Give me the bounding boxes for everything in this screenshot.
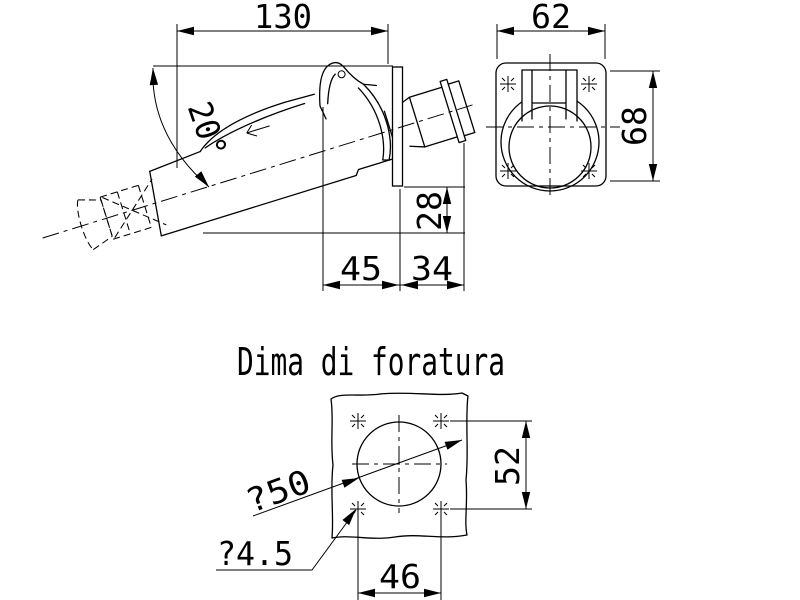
front-view: 62 68 [486,0,660,197]
dim-angle-label: 20° [180,97,235,163]
side-view: 130 20° 28 [43,0,477,291]
dim-4-5-label: ?4.5 [217,534,293,573]
dim-hole-4-5: ?4.5 [216,506,359,573]
drill-template: Dima di foratura ?50 ?4.5 [216,340,532,600]
dim-diameter-50: ?50 [240,436,463,521]
dim-52: 52 [450,421,532,509]
dim-62-label: 62 [531,0,571,36]
dim-28-label: 28 [410,191,449,231]
template-title: Dima di foratura [237,340,505,384]
dim-50-label: ?50 [240,462,315,521]
dim-62: 62 [497,0,605,59]
drawing-canvas: 130 20° 28 [0,0,800,600]
dim-46-label: 46 [379,557,421,596]
dim-130-label: 130 [254,0,312,36]
template-centerlines [352,415,447,513]
dim-52-label: 52 [488,446,527,486]
dim-46: 46 [358,517,441,600]
dim-angle-20: 20° [149,66,393,190]
dim-28: 28 [203,187,465,233]
dim-45-label: 45 [340,249,382,288]
dim-34-label: 34 [411,249,453,288]
dim-68: 68 [610,71,660,181]
dim-68-label: 68 [615,106,654,146]
mounting-flange-side [393,67,403,186]
body-outline [141,96,400,236]
axis-centerline [43,105,473,238]
technical-drawing: 130 20° 28 [0,0,800,600]
